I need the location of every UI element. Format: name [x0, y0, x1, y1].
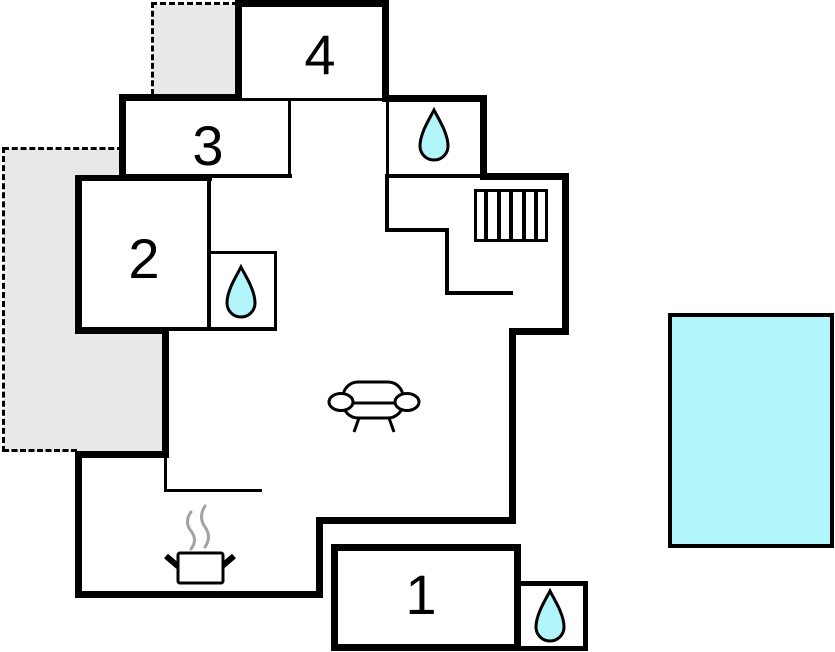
- wall-segment: [509, 328, 516, 524]
- terrace-area-left: [4, 149, 123, 178]
- terrace-area-left: [4, 330, 164, 452]
- stairs-icon: [474, 189, 548, 242]
- stairs-step-line: [509, 192, 513, 239]
- wall-segment: [235, 0, 389, 7]
- terrace-dashed-border: [2, 147, 5, 452]
- terrace-dashed-border: [3, 147, 123, 150]
- water-drop-icon: [533, 588, 567, 644]
- wall-segment: [316, 517, 516, 524]
- wall-segment: [207, 251, 277, 254]
- wall-segment: [386, 98, 389, 178]
- wall-segment: [382, 95, 487, 102]
- wall-segment: [164, 489, 262, 492]
- wall-segment: [242, 98, 382, 101]
- wall-segment: [75, 451, 82, 598]
- wall-segment: [235, 0, 242, 101]
- stairs-step-line: [484, 192, 488, 239]
- wall-segment: [207, 178, 211, 330]
- terrace-dashed-border: [151, 2, 154, 95]
- wall-segment: [164, 327, 277, 331]
- room-label-1: 1: [381, 566, 461, 624]
- terrace-dashed-border: [3, 449, 77, 452]
- room-label-2: 2: [104, 230, 184, 288]
- wall-segment: [274, 251, 277, 330]
- wall-segment: [385, 228, 449, 232]
- swimming-pool: [668, 313, 834, 548]
- terrace-area-top: [153, 4, 237, 96]
- wall-segment: [75, 451, 169, 458]
- wall-segment: [562, 173, 569, 335]
- stairs-step-line: [497, 192, 501, 239]
- floor-plan-canvas: 4 3 2 1: [0, 0, 835, 652]
- wall-segment: [119, 94, 126, 181]
- water-drop-icon: [417, 107, 451, 163]
- wall-segment: [162, 327, 169, 458]
- wall-segment: [75, 591, 323, 598]
- wall-segment: [445, 228, 449, 295]
- room-label-4: 4: [280, 26, 360, 84]
- wall-segment: [509, 328, 569, 335]
- terrace-dashed-border: [151, 2, 238, 5]
- wall-segment: [75, 175, 82, 334]
- water-drop-icon: [224, 264, 258, 320]
- wall-segment: [119, 94, 242, 101]
- stairs-step-line: [522, 192, 526, 239]
- wall-segment: [480, 95, 487, 180]
- wall-segment: [480, 173, 569, 180]
- stairs-step-line: [534, 192, 538, 239]
- wall-segment: [316, 517, 323, 598]
- sofa-icon: [326, 379, 422, 435]
- wall-segment: [288, 98, 291, 177]
- wall-segment: [382, 0, 389, 101]
- wall-segment: [386, 174, 483, 178]
- wall-segment: [164, 455, 167, 492]
- terrace-area-left: [4, 178, 79, 330]
- room-label-3: 3: [168, 117, 248, 175]
- stove-pot-icon: [160, 500, 240, 590]
- wall-segment: [75, 327, 169, 334]
- wall-segment: [445, 291, 513, 295]
- wall-segment: [385, 174, 389, 232]
